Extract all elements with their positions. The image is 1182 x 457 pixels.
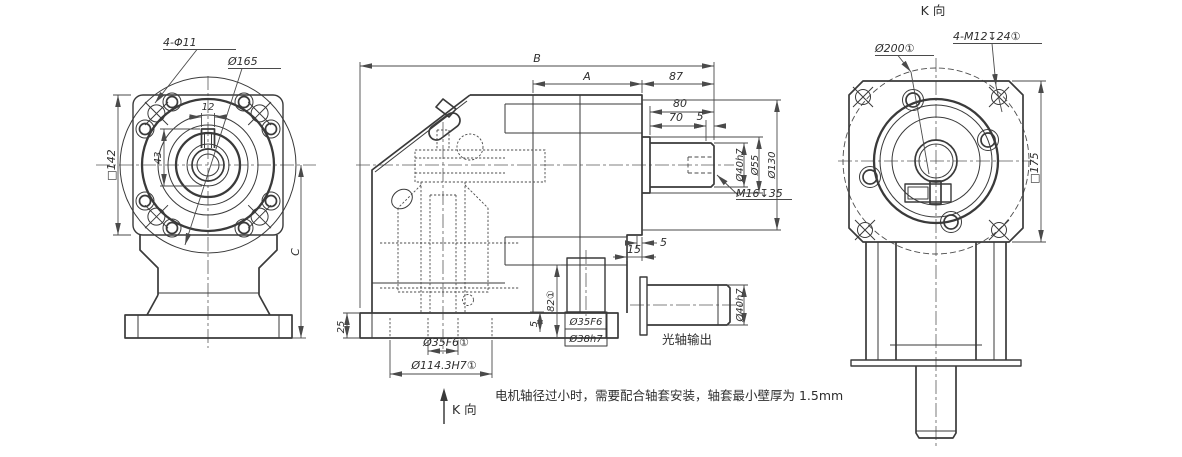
dim-usable-length-label: 70 (669, 111, 683, 124)
side-view-outline (360, 95, 642, 338)
dim-square-label: □142 (105, 149, 118, 180)
dim-total-length-label: B (533, 52, 541, 65)
side-view-dimensions: B A 87 80 70 5 Ø40h7 Ø55 Ø130 (336, 52, 792, 424)
dim-input-bore-label: Ø35F6① (422, 336, 469, 349)
dim-pilot-depth-label: 82① (546, 290, 557, 312)
k-view: K 向 (838, 3, 1046, 446)
dim-base-height-label: 25 (336, 321, 347, 334)
dim-register-dia-k-label: Ø200① (874, 42, 915, 55)
dim-tip-length-label: 5 (697, 110, 704, 123)
dim-register-dia-label: Ø130 (766, 152, 778, 180)
plain-shaft-caption: 光轴输出 (662, 332, 712, 347)
dim-face-offset-label: 15 (627, 243, 641, 256)
dim-keyway-width-label: 12 (202, 102, 215, 113)
dim-holes-label: 4-Φ11 (163, 36, 197, 49)
dim-tapped-holes-label: 4-M12↧24① (953, 30, 1021, 43)
drawing-note: 电机轴径过小时，需要配合轴套安装，轴套最小壁厚为 1.5mm (495, 388, 843, 403)
dim-height-label: C (289, 248, 302, 256)
dim-shaft-length-label: 80 (673, 97, 687, 110)
front-view-body (125, 235, 292, 338)
sleeve-detail: Ø35F6 Ø38h7 (565, 250, 607, 346)
dim-square-k-label: □175 (1028, 152, 1041, 183)
gearbox-drawing: 12 43 □142 C 4-Φ11 Ø165 (0, 0, 1182, 457)
front-view: 12 43 □142 C 4-Φ11 Ø165 (96, 36, 316, 348)
dim-boss-dia-label: Ø55 (749, 155, 761, 177)
sleeve-outer-dia-label: Ø38h7 (568, 333, 603, 345)
side-view: B A 87 80 70 5 Ø40h7 Ø55 Ø130 (336, 52, 792, 424)
dim-flange-circle-label: Ø165 (227, 55, 258, 68)
dim-input-register-label: Ø114.3H7① (410, 359, 476, 372)
engineering-drawing-sheet: 12 43 □142 C 4-Φ11 Ø165 (0, 0, 1182, 457)
dim-shaft-dia-label: Ø40h7 (734, 148, 746, 183)
dim-shaft-end-length-label: 87 (669, 70, 683, 83)
dim-mount-length-label: A (582, 70, 591, 83)
k-direction-arrow (440, 388, 448, 401)
k-view-centerlines (838, 58, 1034, 446)
dim-tapped-hole-label: M16↧35 (736, 187, 783, 200)
k-view-title: K 向 (921, 3, 946, 18)
side-view-hidden-internals (380, 130, 545, 338)
plain-shaft-detail: Ø40h7 光轴输出 (630, 277, 748, 347)
sleeve-inner-dia-label: Ø35F6 (569, 316, 603, 328)
plain-shaft-dia-label: Ø40h7 (734, 288, 746, 323)
view-arrow-label: K 向 (452, 402, 477, 417)
dim-face-step-label: 5 (660, 236, 667, 249)
dim-pilot-step-label: 5 (529, 321, 540, 327)
dim-keyway-height-label: 43 (153, 152, 164, 165)
